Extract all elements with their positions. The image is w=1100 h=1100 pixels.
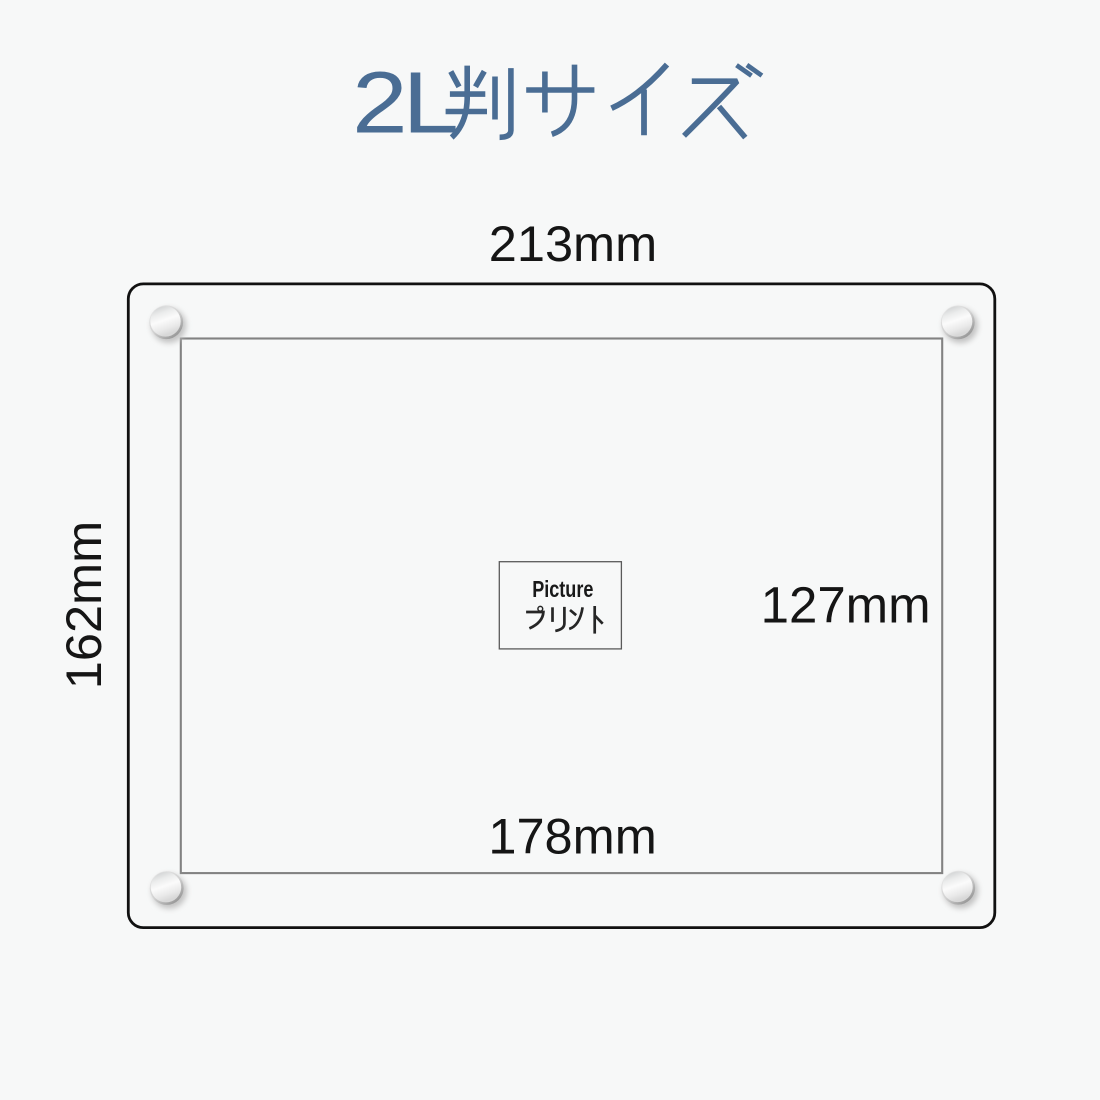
svg-text:213mm: 213mm (489, 215, 657, 272)
svg-text:178mm: 178mm (488, 807, 656, 864)
svg-text:2: 2 (352, 54, 407, 152)
svg-text:L: L (402, 54, 458, 152)
svg-text:127mm: 127mm (761, 576, 931, 633)
svg-text:Picture: Picture (532, 576, 593, 602)
svg-text:162mm: 162mm (55, 521, 112, 689)
